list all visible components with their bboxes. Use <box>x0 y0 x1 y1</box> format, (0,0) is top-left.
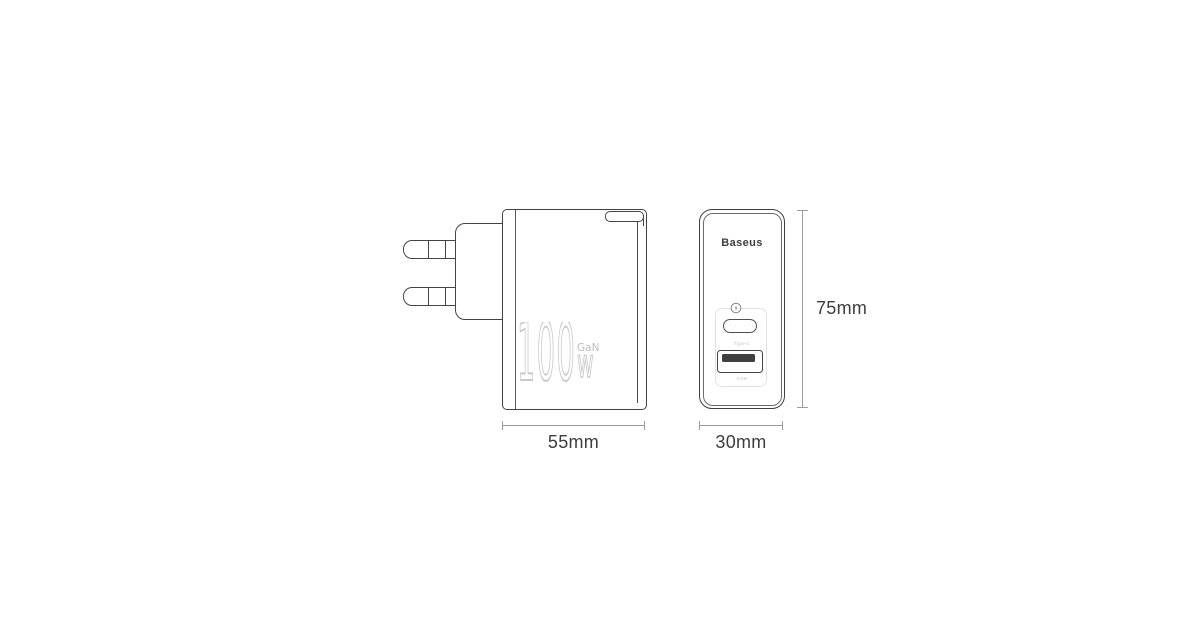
faceplate-edge-line <box>637 221 638 403</box>
usb-c-port-label: Type-C <box>708 342 775 347</box>
charger-dimensions-diagram: 100 GaN w Baseus Type-C USB 55mm 30mm 75… <box>0 0 1200 630</box>
charger-side-view-body: 100 GaN w <box>502 209 647 410</box>
charger-front-view-body: Baseus Type-C USB <box>699 209 785 409</box>
width-dimension-side-view: 55mm <box>502 425 645 453</box>
width-dimension-label: 30mm <box>699 432 783 453</box>
prong-segment-line <box>428 288 429 305</box>
prong-segment-line <box>445 241 446 258</box>
plug-base <box>455 223 507 320</box>
watermark-unit: w <box>577 342 594 387</box>
usb-a-port-label: USB <box>708 377 775 382</box>
plug-prong-bottom <box>403 287 457 306</box>
quick-charge-lightning-circle-icon <box>730 302 742 314</box>
dimension-line-horizontal <box>699 425 783 426</box>
top-latch-clip <box>605 211 644 222</box>
plug-prong-top <box>403 240 457 259</box>
power-rating-watermark: 100 GaN w <box>516 322 608 394</box>
dimension-line-vertical <box>802 210 803 408</box>
prong-segment-line <box>445 288 446 305</box>
height-dimension-front-view: 75mm <box>797 210 808 408</box>
height-dimension-label: 75mm <box>816 298 867 319</box>
dimension-line-horizontal <box>502 425 645 426</box>
usb-c-port <box>723 319 757 333</box>
usb-a-port <box>717 350 763 373</box>
width-dimension-label: 55mm <box>502 432 645 453</box>
prong-segment-line <box>428 241 429 258</box>
brand-label: Baseus <box>700 237 784 249</box>
width-dimension-front-view: 30mm <box>699 425 783 453</box>
watermark-number: 100 <box>517 322 576 394</box>
usb-a-pin-tongue <box>722 354 755 362</box>
